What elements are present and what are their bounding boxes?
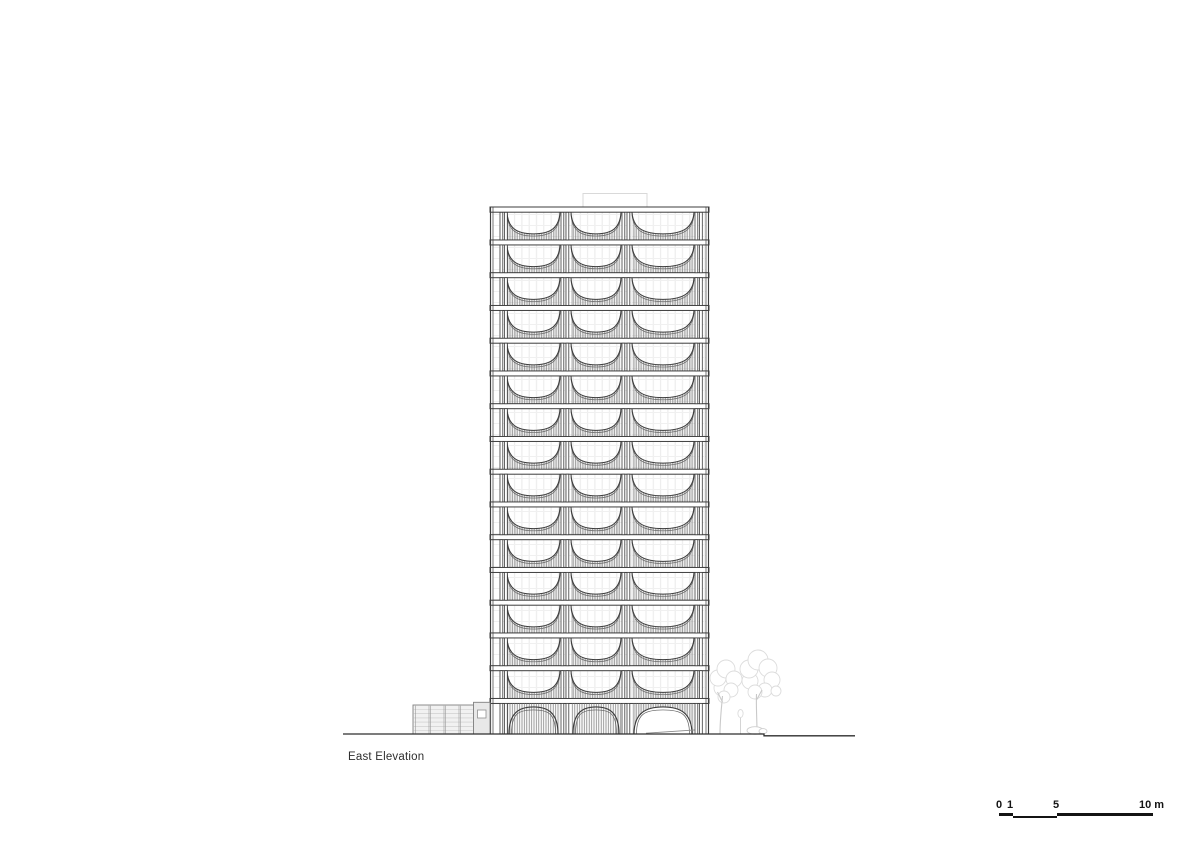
facade-pier bbox=[700, 409, 703, 437]
facade-pier bbox=[700, 605, 703, 633]
facade-pier bbox=[500, 376, 503, 404]
facade-pier bbox=[500, 245, 503, 273]
floor-slab bbox=[490, 305, 709, 310]
elevation-drawing bbox=[0, 0, 1200, 848]
facade-pier bbox=[695, 376, 698, 404]
facade-pier bbox=[566, 671, 569, 699]
facade-pier bbox=[700, 671, 703, 699]
elevation-sheet: East Elevation 0 1 5 10 m bbox=[0, 0, 1200, 848]
facade-pier bbox=[500, 572, 503, 600]
scale-segment-5-10 bbox=[1057, 813, 1153, 815]
facade-pier bbox=[622, 278, 625, 306]
facade-pier bbox=[505, 409, 508, 437]
scale-label-10: 10 m bbox=[1139, 799, 1164, 811]
floor-slab bbox=[490, 273, 709, 278]
facade-pier bbox=[622, 638, 625, 666]
facade-pier bbox=[695, 605, 698, 633]
facade-pier bbox=[695, 671, 698, 699]
facade-pier bbox=[622, 343, 625, 371]
floor-slab bbox=[490, 567, 709, 572]
facade-pier bbox=[500, 409, 503, 437]
facade-pier bbox=[505, 245, 508, 273]
facade-pier bbox=[622, 507, 625, 535]
facade-pier bbox=[561, 638, 564, 666]
annex-building bbox=[413, 702, 490, 734]
facade-pier bbox=[695, 638, 698, 666]
facade-pier bbox=[505, 507, 508, 535]
facade-pier bbox=[500, 474, 503, 502]
facade-pier bbox=[561, 605, 564, 633]
facade-pier bbox=[627, 376, 630, 404]
tower-facade bbox=[490, 207, 709, 734]
facade-pier bbox=[700, 343, 703, 371]
facade-pier bbox=[700, 507, 703, 535]
facade-pier bbox=[500, 638, 503, 666]
facade-pier bbox=[505, 605, 508, 633]
scale-segment-1-5 bbox=[1013, 816, 1057, 818]
scale-segment-0-1 bbox=[999, 813, 1013, 815]
ground-arch-spandrel bbox=[632, 703, 694, 734]
facade-pier bbox=[505, 310, 508, 338]
facade-pier bbox=[622, 212, 625, 240]
scale-label-5: 5 bbox=[1053, 799, 1059, 811]
scale-label-1: 1 bbox=[1007, 799, 1013, 811]
facade-pier bbox=[561, 310, 564, 338]
facade-pier bbox=[622, 441, 625, 469]
facade-pier bbox=[566, 245, 569, 273]
facade-pier bbox=[627, 278, 630, 306]
ground-pier bbox=[627, 703, 630, 734]
facade-pier bbox=[500, 507, 503, 535]
ground-pier bbox=[566, 703, 569, 734]
facade-pier bbox=[566, 474, 569, 502]
facade-pier bbox=[695, 474, 698, 502]
facade-pier bbox=[622, 376, 625, 404]
facade-pier bbox=[500, 310, 503, 338]
floor-slab bbox=[490, 698, 709, 703]
floor-slab bbox=[490, 436, 709, 441]
annex-door bbox=[478, 710, 487, 718]
facade-pier bbox=[561, 409, 564, 437]
facade-pier bbox=[627, 540, 630, 568]
ground-pier bbox=[561, 703, 564, 734]
facade-pier bbox=[505, 278, 508, 306]
facade-pier bbox=[505, 376, 508, 404]
floor-slab bbox=[490, 240, 709, 245]
facade-pier bbox=[500, 343, 503, 371]
facade-pier bbox=[505, 638, 508, 666]
facade-pier bbox=[566, 310, 569, 338]
floor-slab bbox=[490, 404, 709, 409]
facade-pier bbox=[566, 540, 569, 568]
facade-pier bbox=[627, 441, 630, 469]
facade-pier bbox=[566, 441, 569, 469]
facade-pier bbox=[695, 212, 698, 240]
facade-pier bbox=[622, 474, 625, 502]
trees bbox=[710, 650, 781, 734]
facade-pier bbox=[566, 638, 569, 666]
facade-pier bbox=[500, 278, 503, 306]
facade-pier bbox=[566, 278, 569, 306]
facade-pier bbox=[622, 671, 625, 699]
facade-pier bbox=[566, 212, 569, 240]
facade-pier bbox=[627, 638, 630, 666]
facade-pier bbox=[695, 409, 698, 437]
facade-pier bbox=[695, 441, 698, 469]
tree-canopy bbox=[771, 686, 781, 696]
tree-canopy bbox=[748, 685, 762, 699]
facade-pier bbox=[695, 278, 698, 306]
facade-pier bbox=[561, 278, 564, 306]
floor-slab bbox=[490, 371, 709, 376]
facade-pier bbox=[700, 474, 703, 502]
facade-pier bbox=[561, 572, 564, 600]
ground-pier bbox=[505, 703, 508, 734]
facade-pier bbox=[627, 671, 630, 699]
parapet bbox=[490, 207, 709, 212]
facade-pier bbox=[505, 212, 508, 240]
ground-pier bbox=[695, 703, 698, 734]
facade-pier bbox=[505, 343, 508, 371]
facade-pier bbox=[561, 376, 564, 404]
facade-pier bbox=[627, 343, 630, 371]
facade-pier bbox=[500, 441, 503, 469]
floor-slab bbox=[490, 338, 709, 343]
facade-pier bbox=[700, 376, 703, 404]
facade-pier bbox=[561, 441, 564, 469]
facade-pier bbox=[700, 310, 703, 338]
facade-pier bbox=[561, 671, 564, 699]
facade-pier bbox=[561, 343, 564, 371]
facade-pier bbox=[627, 245, 630, 273]
facade-pier bbox=[700, 540, 703, 568]
facade-pier bbox=[561, 540, 564, 568]
floor-slab bbox=[490, 502, 709, 507]
facade-pier bbox=[561, 245, 564, 273]
facade-pier bbox=[500, 212, 503, 240]
drawing-title: East Elevation bbox=[348, 751, 424, 763]
scale-label-0: 0 bbox=[996, 799, 1002, 811]
ground-bay-screen bbox=[507, 703, 560, 734]
facade-pier bbox=[622, 409, 625, 437]
floor-slab bbox=[490, 535, 709, 540]
sapling-canopy bbox=[738, 710, 743, 718]
facade-pier bbox=[505, 671, 508, 699]
facade-pier bbox=[622, 540, 625, 568]
facade-pier bbox=[695, 343, 698, 371]
facade-pier bbox=[627, 474, 630, 502]
ground-line bbox=[343, 734, 855, 736]
facade-pier bbox=[700, 638, 703, 666]
facade-pier bbox=[700, 212, 703, 240]
facade-pier bbox=[566, 343, 569, 371]
facade-pier bbox=[566, 605, 569, 633]
facade-pier bbox=[695, 245, 698, 273]
facade-pier bbox=[622, 572, 625, 600]
facade-pier bbox=[566, 507, 569, 535]
facade-pier bbox=[627, 605, 630, 633]
facade-pier bbox=[505, 474, 508, 502]
facade-pier bbox=[561, 507, 564, 535]
facade-pier bbox=[695, 572, 698, 600]
facade-pier bbox=[500, 671, 503, 699]
facade-pier bbox=[700, 441, 703, 469]
floor-slab bbox=[490, 469, 709, 474]
facade-pier bbox=[561, 212, 564, 240]
facade-pier bbox=[566, 409, 569, 437]
facade-pier bbox=[505, 441, 508, 469]
floor-slab bbox=[490, 600, 709, 605]
facade-pier bbox=[622, 605, 625, 633]
facade-pier bbox=[627, 212, 630, 240]
bush bbox=[759, 729, 767, 734]
facade-pier bbox=[700, 245, 703, 273]
ground-pier bbox=[700, 703, 703, 734]
facade-pier bbox=[700, 278, 703, 306]
facade-pier bbox=[695, 540, 698, 568]
facade-pier bbox=[627, 409, 630, 437]
facade-pier bbox=[561, 474, 564, 502]
facade-pier bbox=[622, 310, 625, 338]
ground-pier bbox=[500, 703, 503, 734]
facade-pier bbox=[505, 540, 508, 568]
ground-bay-screen bbox=[571, 703, 621, 734]
facade-pier bbox=[695, 310, 698, 338]
facade-pier bbox=[695, 507, 698, 535]
facade-pier bbox=[627, 310, 630, 338]
floor-slab bbox=[490, 666, 709, 671]
facade-pier bbox=[627, 507, 630, 535]
floor-slab bbox=[490, 633, 709, 638]
facade-pier bbox=[622, 245, 625, 273]
facade-pier bbox=[700, 572, 703, 600]
facade-pier bbox=[566, 572, 569, 600]
ground-floor bbox=[500, 703, 702, 734]
facade-pier bbox=[566, 376, 569, 404]
ground-pier bbox=[622, 703, 625, 734]
facade-pier bbox=[500, 540, 503, 568]
facade-pier bbox=[627, 572, 630, 600]
facade-pier bbox=[500, 605, 503, 633]
roof-bulkhead bbox=[583, 194, 647, 208]
facade-pier bbox=[505, 572, 508, 600]
